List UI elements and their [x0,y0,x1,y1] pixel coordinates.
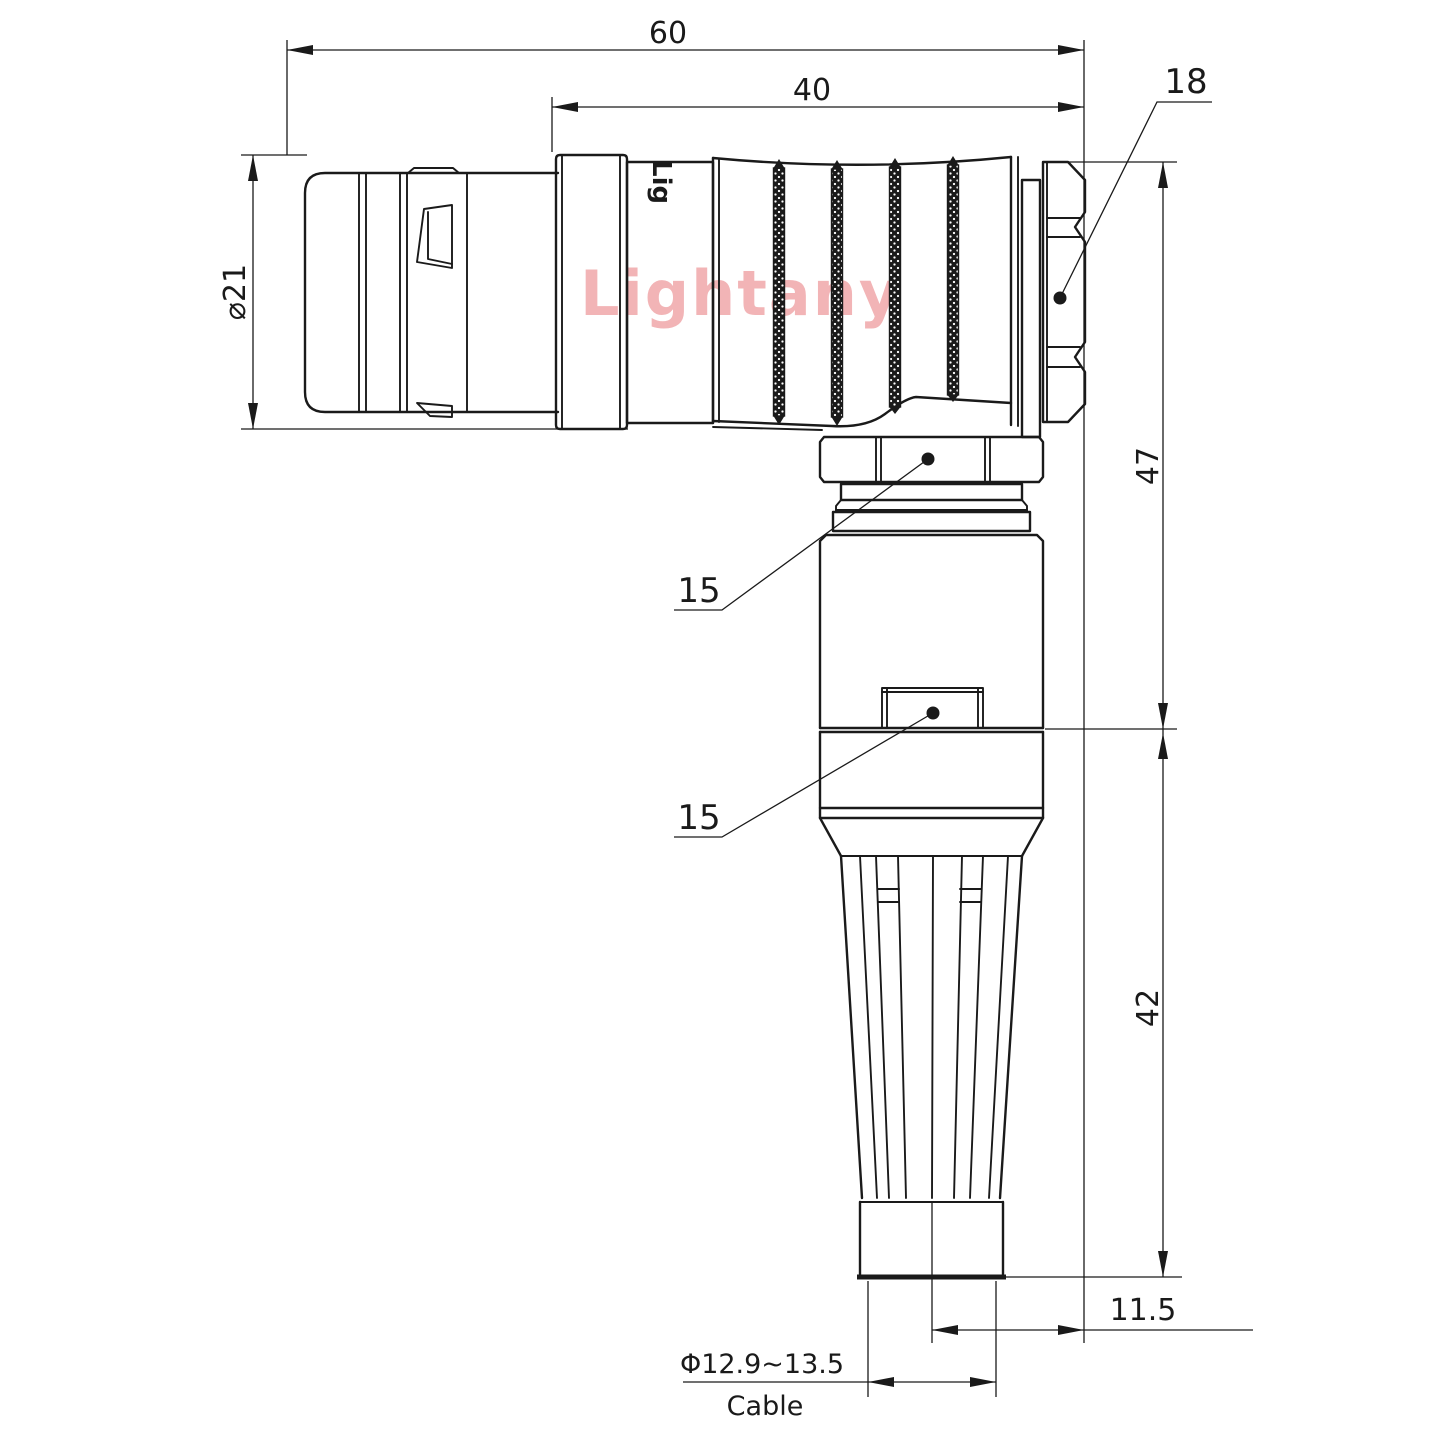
body-upper [820,535,1043,732]
dim-d21-label: ⌀21 [218,264,253,320]
dim-47-label: 47 [1131,447,1166,485]
dim-42-label: 42 [1131,989,1166,1027]
dim-cable-diameter-label: Φ12.9~13.5 [680,1349,844,1380]
plug-release-sleeve [305,168,558,417]
cable-caption: Cable [727,1391,804,1422]
key-tab-top [408,168,459,173]
technical-drawing-canvas: Lightany Lig [0,0,1440,1440]
dim-upper-height: 47 [1045,162,1177,729]
keyway-slot [417,205,452,268]
strain-relief-ribs [841,856,1022,1198]
body-lower [820,732,1043,856]
leader-nut-flats: 18 [1054,62,1213,305]
dim-15-body-label: 15 [677,798,720,838]
knurl-band-4 [948,156,959,402]
knurl-band-3 [890,158,901,414]
dim-18-label: 18 [1164,62,1207,102]
part-marking-text: Lig [646,160,676,204]
dim-lower-height: 42 [1003,729,1182,1277]
dim-plug-diameter: ⌀21 [218,155,628,429]
dim-cable-diameter: Φ12.9~13.5 Cable [680,1281,996,1422]
hex-nut [1043,162,1085,422]
knurl-band-1 [774,159,785,425]
connector-drawing-svg: Lightany Lig [0,0,1440,1440]
coupling-washer [1022,180,1040,437]
key-tab-bottom [417,403,452,417]
dim-15-gland-label: 15 [677,571,720,611]
dim-overall-length: 60 [287,16,1084,155]
dim-40-label: 40 [793,73,831,108]
dim-cable-offset: 11.5 [932,1202,1253,1343]
dim-boot-length: 40 [552,73,1084,152]
knurl-band-2 [832,160,843,426]
dim-11-5-label: 11.5 [1110,1293,1177,1328]
dim-60-label: 60 [649,16,687,51]
